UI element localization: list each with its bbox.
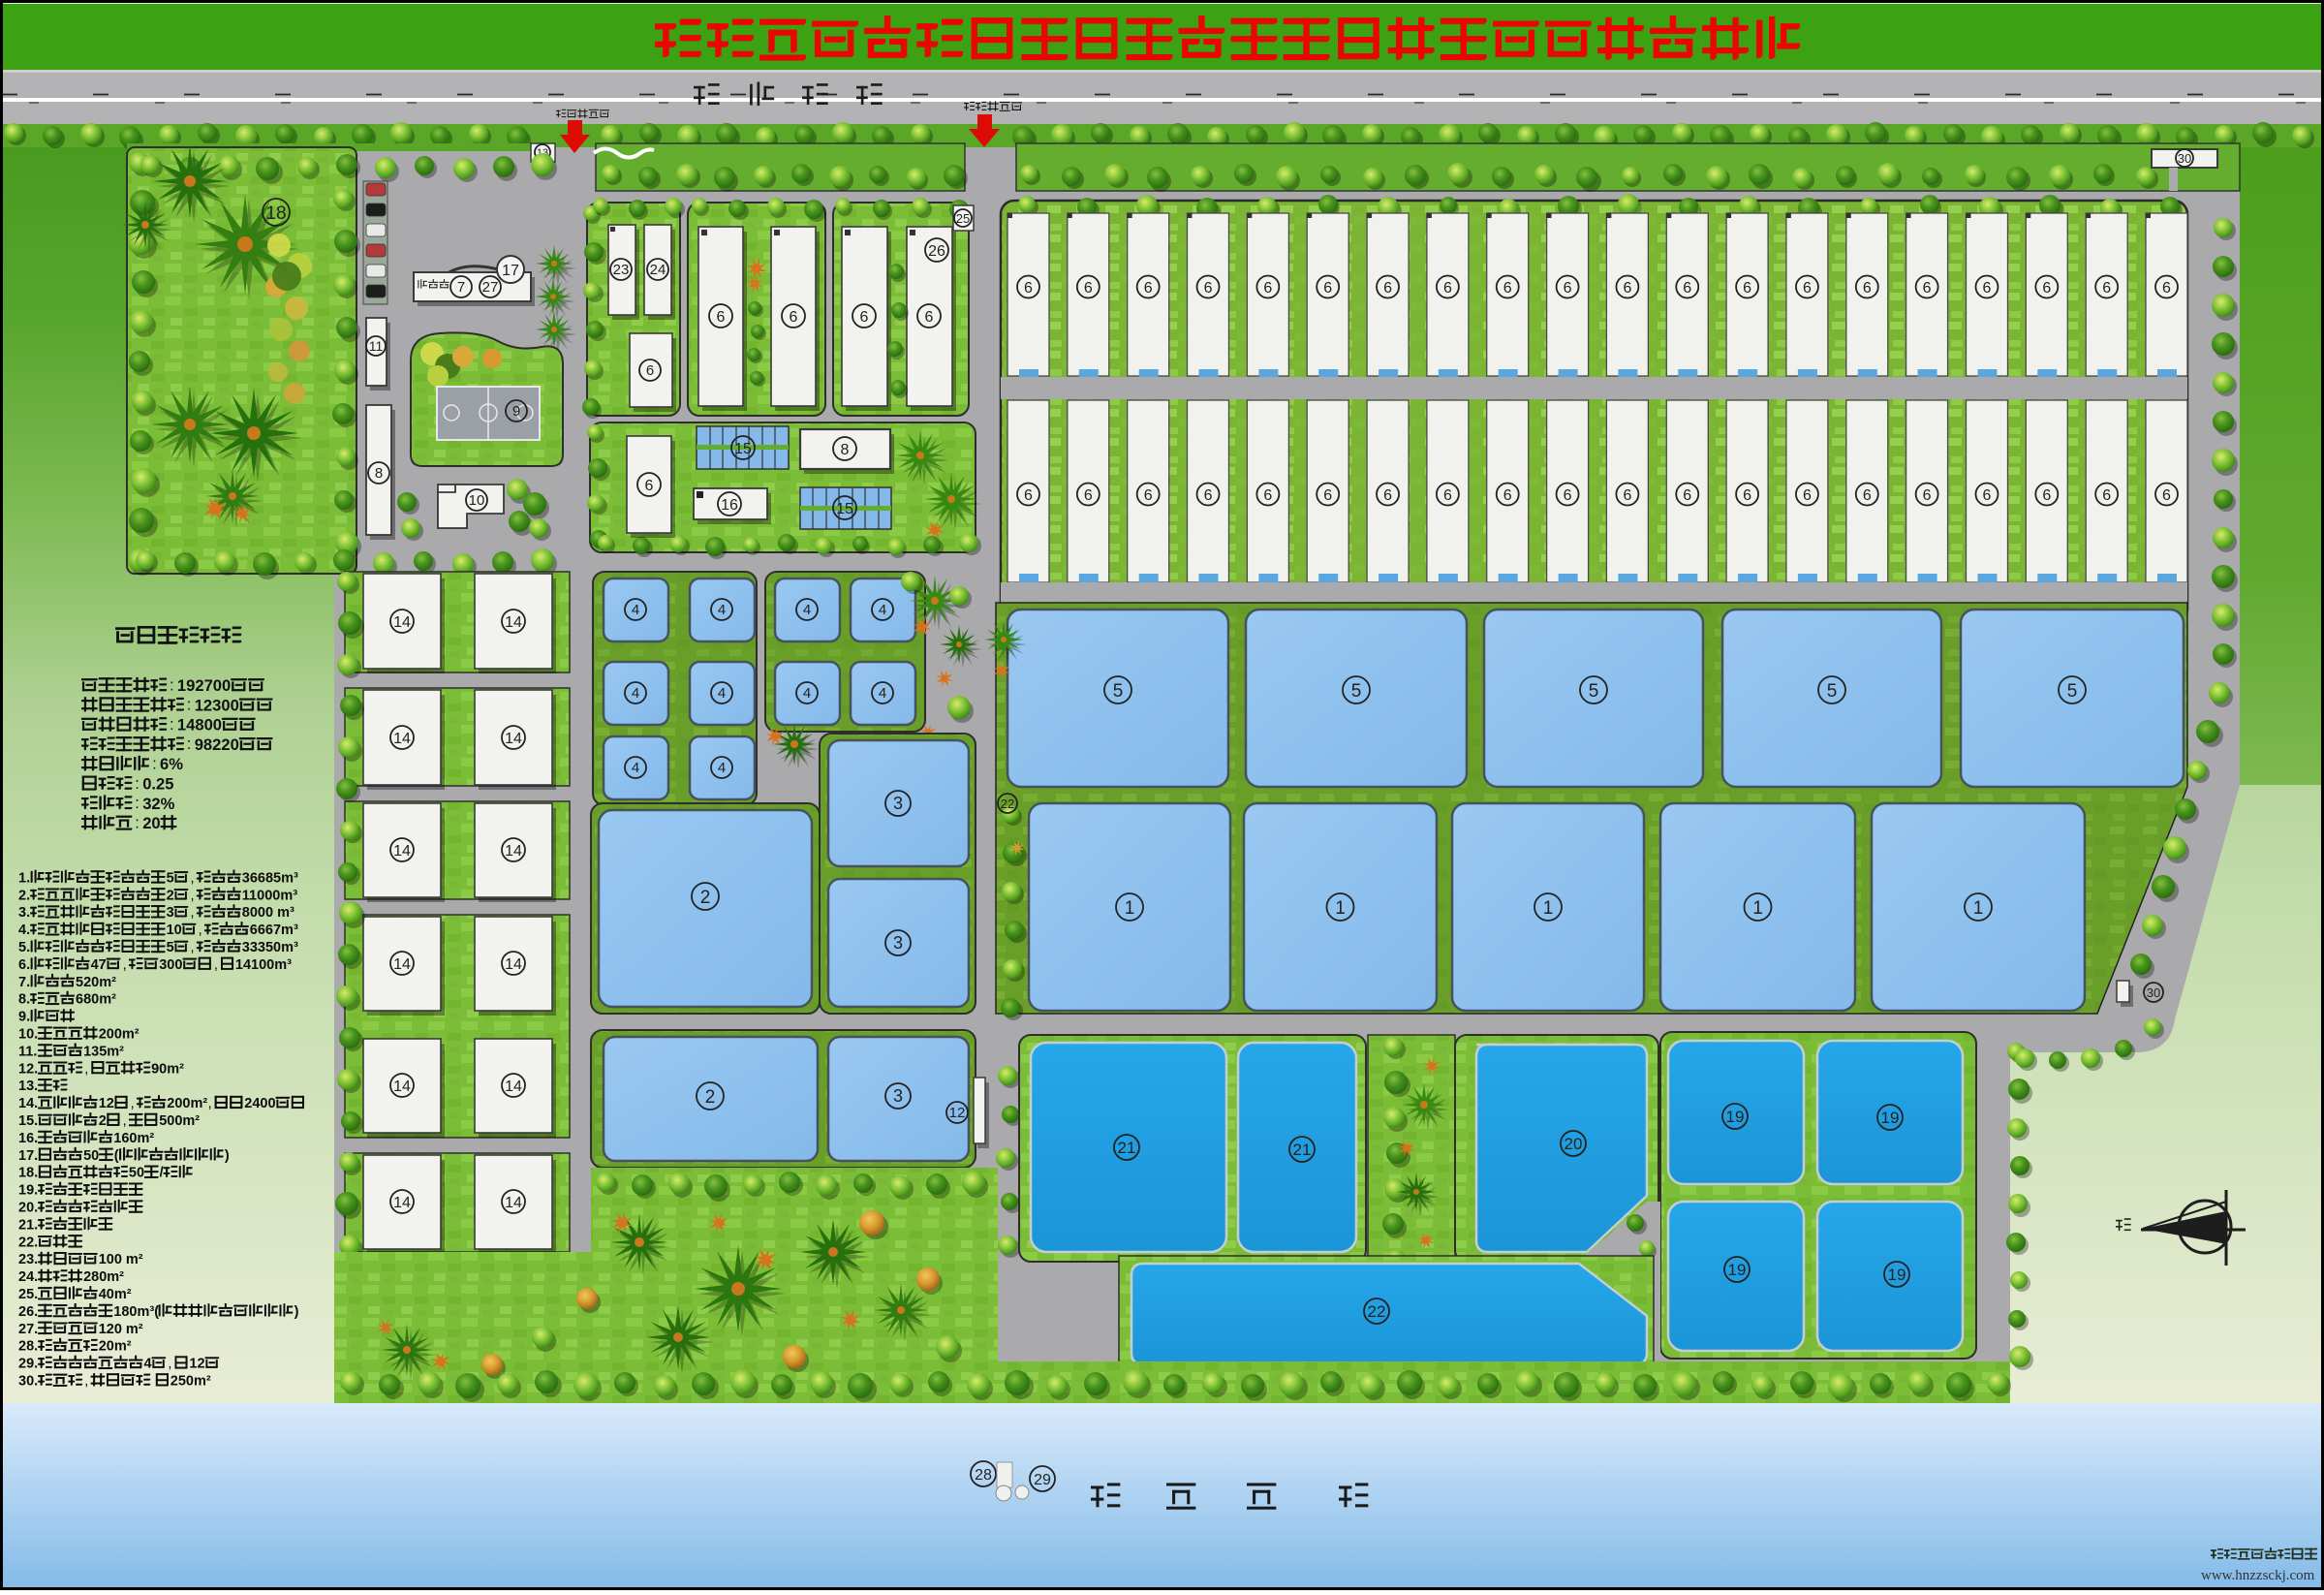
svg-text:6%: 6%: [160, 755, 183, 773]
svg-text:3: 3: [167, 905, 174, 921]
svg-text:2400: 2400: [244, 1096, 275, 1111]
svg-text:6: 6: [2102, 487, 2111, 504]
svg-text:5: 5: [1113, 681, 1124, 702]
svg-text:6: 6: [1144, 280, 1153, 297]
svg-text:6: 6: [1204, 280, 1213, 297]
svg-text:50: 50: [83, 1148, 99, 1164]
svg-text:,: ,: [84, 1374, 88, 1390]
svg-text:2.: 2.: [18, 888, 30, 903]
svg-text:10.: 10.: [18, 1027, 38, 1043]
svg-text:1: 1: [1335, 898, 1346, 919]
svg-text:,: ,: [191, 888, 195, 903]
svg-text:14800: 14800: [177, 716, 222, 735]
svg-text:12: 12: [949, 1105, 966, 1121]
svg-text:17: 17: [502, 263, 519, 279]
svg-text:100 m²: 100 m²: [99, 1252, 143, 1267]
svg-text:6: 6: [1683, 487, 1691, 504]
svg-text:1.: 1.: [18, 870, 30, 886]
svg-text:): ): [225, 1148, 230, 1164]
svg-text:2: 2: [167, 888, 174, 903]
svg-text:1: 1: [1125, 898, 1135, 919]
svg-text:200m²: 200m²: [167, 1096, 207, 1111]
svg-text:4: 4: [879, 685, 886, 702]
svg-text:280m²: 280m²: [83, 1269, 124, 1285]
svg-text:6: 6: [1743, 280, 1751, 297]
svg-text:11: 11: [369, 338, 384, 354]
svg-text:23.: 23.: [18, 1252, 38, 1267]
svg-text:21: 21: [1118, 1139, 1136, 1157]
svg-text:6: 6: [1383, 280, 1392, 297]
svg-text:15: 15: [836, 501, 853, 517]
svg-text:19: 19: [1888, 1266, 1906, 1284]
svg-text::: :: [187, 696, 192, 714]
svg-text:14: 14: [393, 731, 411, 747]
svg-text:18: 18: [265, 203, 286, 224]
svg-text:30: 30: [2178, 151, 2191, 166]
svg-text:680m²: 680m²: [76, 992, 116, 1008]
svg-text:3: 3: [893, 933, 903, 953]
svg-text:26: 26: [928, 243, 945, 260]
svg-text:120 m²: 120 m²: [99, 1322, 143, 1337]
svg-text:,: ,: [214, 957, 218, 973]
svg-text:8: 8: [375, 465, 383, 482]
svg-text:10: 10: [167, 923, 182, 938]
svg-text:22: 22: [1001, 797, 1014, 811]
svg-text:0.25: 0.25: [142, 775, 173, 794]
svg-text:7.: 7.: [18, 975, 30, 990]
svg-text:160m²: 160m²: [113, 1131, 154, 1146]
svg-text:6: 6: [1923, 280, 1932, 297]
svg-text:,: ,: [84, 1061, 88, 1077]
svg-text:6: 6: [1263, 487, 1272, 504]
svg-text:4: 4: [803, 685, 811, 702]
svg-text:6: 6: [717, 309, 726, 326]
svg-text:11000m³: 11000m³: [242, 888, 297, 903]
svg-text:,: ,: [131, 1096, 135, 1111]
svg-text:21: 21: [1293, 1141, 1312, 1159]
svg-text:6: 6: [1323, 487, 1332, 504]
svg-text:6: 6: [2102, 280, 2111, 297]
svg-text:10: 10: [469, 492, 485, 509]
svg-text:32%: 32%: [142, 795, 174, 813]
svg-text::: :: [152, 755, 157, 773]
svg-text:14: 14: [505, 956, 522, 973]
svg-text:6: 6: [1024, 487, 1033, 504]
svg-text:22: 22: [1368, 1302, 1386, 1321]
svg-text:14: 14: [505, 1079, 522, 1095]
svg-text:6: 6: [1443, 280, 1452, 297]
svg-text:6667m³: 6667m³: [250, 923, 298, 938]
svg-text:30: 30: [2147, 985, 2160, 1000]
svg-text:20m²: 20m²: [99, 1339, 132, 1355]
svg-text:3: 3: [893, 1086, 903, 1106]
svg-text:6: 6: [1743, 487, 1751, 504]
svg-text:6: 6: [1024, 280, 1033, 297]
svg-text:5: 5: [1589, 681, 1599, 702]
svg-text:24: 24: [650, 262, 666, 278]
svg-text:6: 6: [1204, 487, 1213, 504]
svg-text:14: 14: [393, 843, 411, 860]
svg-text:500m²: 500m²: [159, 1113, 200, 1129]
svg-text:4: 4: [803, 602, 811, 618]
svg-text:16.: 16.: [18, 1131, 38, 1146]
svg-text:23: 23: [613, 262, 630, 278]
svg-text:7: 7: [457, 279, 465, 296]
svg-text:30.: 30.: [18, 1374, 38, 1390]
svg-text:/: /: [160, 1166, 164, 1181]
svg-text:6: 6: [1144, 487, 1153, 504]
svg-text:,: ,: [199, 923, 202, 938]
svg-text:3.: 3.: [18, 905, 30, 921]
svg-text:6: 6: [1084, 487, 1093, 504]
svg-text:6: 6: [1503, 487, 1512, 504]
svg-text:6: 6: [2042, 487, 2051, 504]
svg-text:12: 12: [99, 1096, 114, 1111]
svg-text:250m²: 250m²: [170, 1374, 211, 1390]
svg-text:): ): [294, 1304, 299, 1320]
svg-text:5: 5: [2067, 681, 2078, 702]
svg-text:4.: 4.: [18, 923, 30, 938]
svg-text:6: 6: [790, 309, 798, 326]
svg-text:6: 6: [1923, 487, 1932, 504]
svg-text:6: 6: [1863, 487, 1872, 504]
svg-text:40m²: 40m²: [99, 1287, 132, 1302]
svg-text:,: ,: [191, 905, 195, 921]
svg-text:14: 14: [393, 1195, 411, 1211]
svg-text:98220: 98220: [195, 735, 239, 754]
svg-text:20: 20: [1565, 1135, 1583, 1153]
svg-text:www.hnzzsckj.com: www.hnzzsckj.com: [2201, 1568, 2315, 1583]
svg-text:90m²: 90m²: [151, 1061, 184, 1077]
svg-text:8000 m³: 8000 m³: [242, 905, 294, 921]
svg-text:6: 6: [1503, 280, 1512, 297]
svg-text:2: 2: [99, 1113, 107, 1129]
svg-text:14.: 14.: [18, 1096, 38, 1111]
svg-text::: :: [135, 794, 139, 812]
svg-text:300: 300: [159, 957, 182, 973]
svg-text:6: 6: [1983, 280, 1992, 297]
svg-text:14: 14: [505, 614, 522, 631]
svg-text:4: 4: [879, 602, 886, 618]
svg-text:28.: 28.: [18, 1339, 38, 1355]
svg-text:12.: 12.: [18, 1061, 38, 1077]
svg-text:6: 6: [646, 362, 654, 379]
svg-text:28: 28: [975, 1467, 992, 1484]
svg-text:22.: 22.: [18, 1235, 38, 1250]
svg-text:19: 19: [1881, 1109, 1900, 1127]
svg-text:5: 5: [1351, 681, 1362, 702]
svg-text:47: 47: [91, 957, 107, 973]
svg-text:6: 6: [2162, 280, 2171, 297]
svg-text:19.: 19.: [18, 1183, 38, 1199]
svg-text:14: 14: [393, 1079, 411, 1095]
svg-text:4: 4: [718, 760, 726, 776]
svg-text:6: 6: [645, 478, 654, 494]
svg-text:520m²: 520m²: [76, 975, 116, 990]
svg-text:36685m³: 36685m³: [242, 870, 298, 886]
svg-text:20.: 20.: [18, 1201, 38, 1216]
svg-text:6: 6: [1803, 487, 1812, 504]
svg-text:9: 9: [512, 403, 520, 420]
svg-text:27.: 27.: [18, 1322, 38, 1337]
svg-text:180m³(: 180m³(: [113, 1304, 159, 1320]
svg-text:50: 50: [129, 1166, 144, 1181]
svg-text:14100m³: 14100m³: [235, 957, 292, 973]
svg-text:6: 6: [2042, 280, 2051, 297]
svg-text:6.: 6.: [18, 957, 30, 973]
svg-text:,: ,: [123, 1113, 127, 1129]
svg-text:192700: 192700: [177, 676, 231, 695]
svg-text:6: 6: [1623, 280, 1631, 297]
svg-text:9.: 9.: [18, 1010, 30, 1025]
svg-text:6: 6: [1803, 280, 1812, 297]
svg-text:29: 29: [1034, 1472, 1051, 1488]
svg-text:6: 6: [860, 309, 869, 326]
svg-text:12: 12: [189, 1357, 204, 1372]
svg-text:6: 6: [1564, 280, 1572, 297]
svg-text:200m²: 200m²: [99, 1027, 139, 1043]
svg-text:6: 6: [1383, 487, 1392, 504]
svg-text:6: 6: [1623, 487, 1631, 504]
svg-text::: :: [170, 715, 174, 734]
svg-text:6: 6: [1983, 487, 1992, 504]
svg-text:16: 16: [721, 497, 738, 514]
svg-text:13.: 13.: [18, 1079, 38, 1094]
svg-text:14: 14: [505, 843, 522, 860]
svg-text:27: 27: [482, 279, 499, 296]
svg-text:2: 2: [705, 1087, 716, 1108]
svg-text:6: 6: [1863, 280, 1872, 297]
svg-text:19: 19: [1726, 1108, 1745, 1126]
svg-text:14: 14: [505, 731, 522, 747]
svg-text::: :: [187, 735, 192, 753]
svg-text::: :: [135, 813, 139, 831]
svg-text:6: 6: [1084, 280, 1093, 297]
svg-text:4: 4: [632, 685, 639, 702]
svg-text:25.: 25.: [18, 1287, 38, 1302]
svg-text:6: 6: [1683, 280, 1691, 297]
svg-text:20: 20: [142, 814, 160, 832]
svg-text:6: 6: [1263, 280, 1272, 297]
svg-text:5: 5: [167, 870, 174, 886]
svg-text:6: 6: [925, 309, 934, 326]
svg-text:,: ,: [168, 1357, 171, 1372]
svg-text:14: 14: [505, 1195, 522, 1211]
svg-text:12300: 12300: [195, 696, 239, 714]
svg-text:11.: 11.: [18, 1044, 37, 1059]
svg-text:1: 1: [1752, 898, 1763, 919]
svg-text:25: 25: [956, 211, 970, 226]
svg-text:5: 5: [1827, 681, 1838, 702]
svg-text:1: 1: [1973, 898, 1984, 919]
svg-text:3: 3: [893, 794, 903, 813]
svg-text:5.: 5.: [18, 940, 30, 955]
svg-text:,: ,: [191, 940, 195, 955]
svg-text:14: 14: [393, 956, 411, 973]
svg-text:17.: 17.: [18, 1148, 38, 1164]
svg-text:6: 6: [1564, 487, 1572, 504]
svg-text::: :: [135, 774, 139, 793]
svg-text:15.: 15.: [18, 1113, 38, 1129]
svg-text:18.: 18.: [18, 1166, 38, 1181]
svg-text:4: 4: [718, 685, 726, 702]
svg-text:21.: 21.: [18, 1217, 38, 1233]
svg-text:6: 6: [1323, 280, 1332, 297]
svg-text:4: 4: [144, 1357, 152, 1372]
svg-text:33350m³: 33350m³: [242, 940, 298, 955]
svg-text:4: 4: [632, 760, 639, 776]
svg-text:19: 19: [1728, 1261, 1747, 1279]
svg-text:,: ,: [208, 1096, 212, 1111]
svg-text:4: 4: [632, 602, 639, 618]
svg-text:15: 15: [734, 441, 752, 457]
svg-text:5: 5: [167, 940, 174, 955]
svg-text:26.: 26.: [18, 1304, 38, 1320]
svg-text:(: (: [114, 1148, 119, 1164]
svg-text:4: 4: [718, 602, 726, 618]
svg-text:2: 2: [700, 888, 711, 908]
svg-text:24.: 24.: [18, 1269, 38, 1285]
svg-text:135m²: 135m²: [83, 1044, 124, 1059]
svg-text:14: 14: [393, 614, 411, 631]
svg-text:29.: 29.: [18, 1357, 38, 1372]
svg-text:8.: 8.: [18, 992, 30, 1008]
svg-text:6: 6: [2162, 487, 2171, 504]
svg-text:,: ,: [191, 870, 195, 886]
svg-text:8: 8: [841, 442, 850, 458]
svg-text:6: 6: [1443, 487, 1452, 504]
svg-text:1: 1: [1543, 898, 1554, 919]
svg-text::: :: [170, 675, 174, 694]
svg-text:,: ,: [123, 957, 127, 973]
